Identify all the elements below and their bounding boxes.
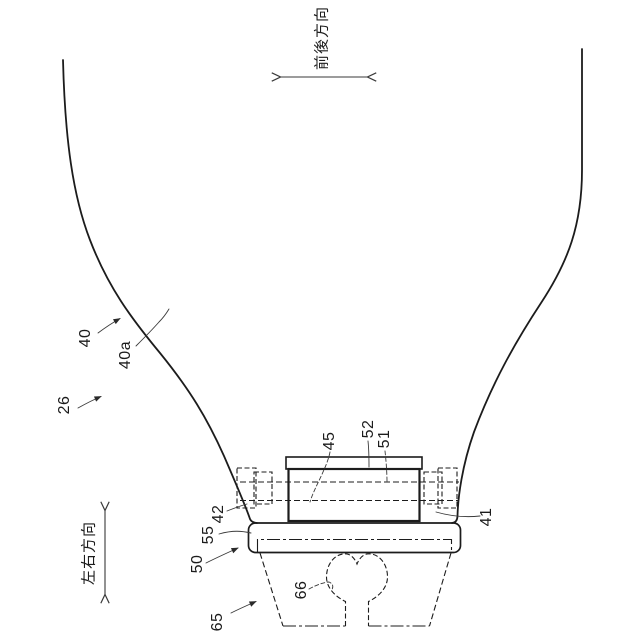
leader-55 [219, 531, 251, 534]
arrow-26 [78, 397, 101, 409]
patent-figure: 前後方向 左右方向 40 40a 26 45 52 51 42 55 50 41… [0, 0, 640, 640]
direction-label-left-right: 左右方向 [82, 521, 97, 585]
right-panel-curve [452, 49, 582, 523]
ref-label-52: 52 [361, 420, 377, 439]
direction-arrows [105, 77, 368, 595]
ref-label-42: 42 [211, 505, 227, 524]
hidden-lines [237, 468, 459, 626]
leader-52 [368, 441, 369, 467]
leader-51 [385, 451, 387, 482]
leader-45 [310, 452, 330, 502]
left-hidden-fitting-inner [254, 472, 272, 504]
left-hidden-fitting-outer [237, 468, 256, 508]
ref-label-40a: 40a [118, 341, 134, 369]
ref-label-50: 50 [190, 555, 206, 574]
base-bar-inner-line [258, 540, 452, 553]
ref-label-26: 26 [57, 396, 73, 415]
right-hidden-fitting-outer [438, 468, 457, 508]
direction-label-front-back: 前後方向 [315, 6, 330, 70]
ref-label-41: 41 [479, 508, 495, 527]
arrow-65 [231, 602, 256, 614]
mount-assembly [249, 457, 461, 553]
ref-label-51: 51 [377, 430, 393, 449]
ref-label-45: 45 [322, 432, 338, 451]
housing-cap [286, 457, 422, 469]
hidden-bracket-right-slant [430, 553, 452, 626]
housing-box [289, 469, 420, 521]
ref-label-65: 65 [210, 613, 226, 632]
panel-outline [63, 49, 582, 523]
leader-40a [136, 309, 169, 346]
hidden-keyhole-cutout [327, 554, 388, 626]
base-bar [249, 523, 461, 553]
ref-label-40: 40 [78, 329, 94, 348]
leader-lines [78, 309, 480, 613]
right-hidden-fitting-inner [424, 472, 442, 504]
hidden-bracket-left-slant [260, 553, 283, 626]
arrow-40 [98, 319, 120, 334]
ref-label-66: 66 [294, 581, 310, 600]
ref-label-55: 55 [201, 526, 217, 545]
left-panel-curve [63, 60, 257, 523]
arrow-50 [206, 548, 238, 563]
